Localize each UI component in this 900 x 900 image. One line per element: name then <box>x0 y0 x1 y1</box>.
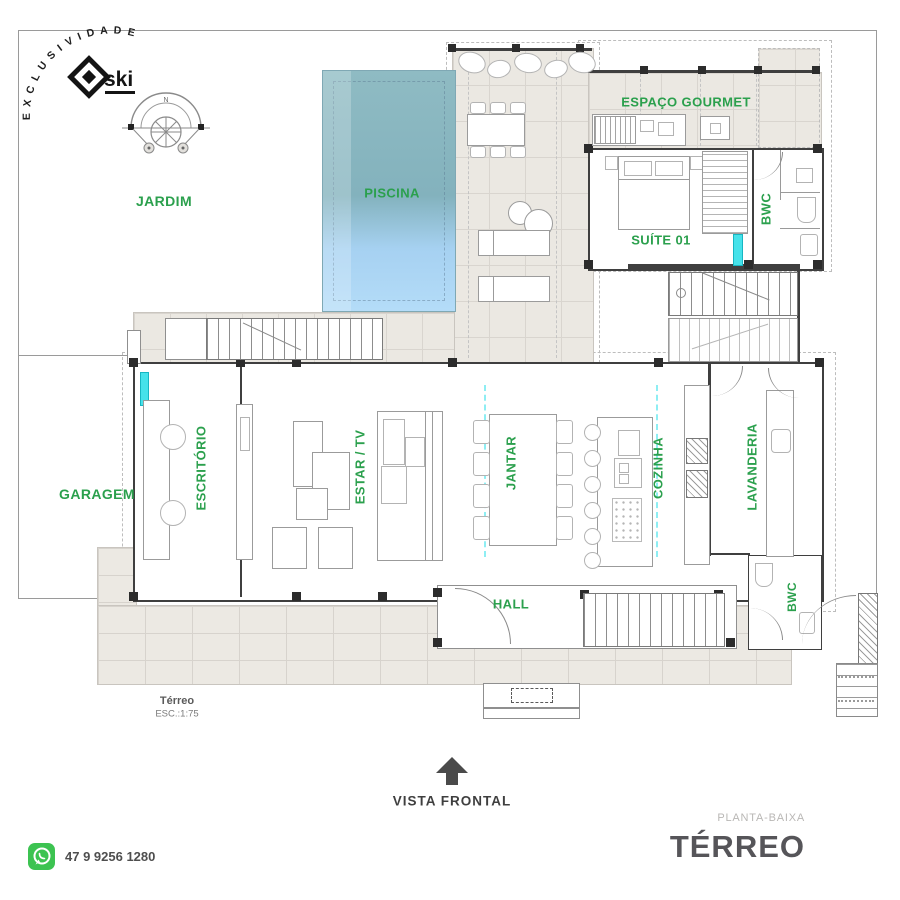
phone-number[interactable]: 47 9 9256 1280 <box>65 849 155 864</box>
office-chair <box>160 500 186 526</box>
stool <box>584 552 601 569</box>
whatsapp-icon[interactable] <box>28 843 55 870</box>
front-view-arrow-stem <box>446 772 458 785</box>
pouf <box>318 527 353 569</box>
column <box>744 260 753 269</box>
blanket-line <box>619 179 689 180</box>
column <box>726 638 735 647</box>
kitchen-island <box>597 417 653 567</box>
sink <box>800 234 818 256</box>
deck-chair <box>490 102 506 114</box>
stairs-lower-flight <box>668 318 798 362</box>
pillow <box>624 161 652 176</box>
room-label-jardim: JARDIM <box>136 193 192 209</box>
column <box>640 66 648 74</box>
deck-chair <box>470 146 486 158</box>
pillow <box>655 161 683 176</box>
column <box>512 44 520 52</box>
porch-mat <box>511 688 553 703</box>
room-label-espaco-gourmet: ESPAÇO GOURMET <box>621 95 751 110</box>
deck-guide-line <box>556 52 557 358</box>
dining-chair <box>556 452 573 476</box>
dining-chair <box>473 484 490 508</box>
office-chair <box>160 424 186 450</box>
laundry-counter <box>766 390 794 557</box>
sliding-door-panel <box>236 404 253 560</box>
stool <box>584 450 601 467</box>
whatsapp-contact[interactable]: 47 9 9256 1280 <box>28 843 155 870</box>
side-steps-dots <box>838 676 874 678</box>
wall-escritorio-divider <box>240 557 242 597</box>
tv-panel-line <box>432 412 433 560</box>
boundary-line-bottom-left <box>18 598 100 599</box>
nightstand <box>605 156 618 170</box>
column <box>433 588 442 597</box>
dining-chair <box>473 420 490 444</box>
toilet <box>755 563 773 587</box>
desk <box>143 400 170 560</box>
compass-north-label: N <box>163 97 168 104</box>
cooktop <box>614 458 642 488</box>
stool <box>584 424 601 441</box>
gourmet-appliance <box>658 122 674 136</box>
front-view-arrow-icon <box>436 757 468 773</box>
sun-lounger <box>478 276 550 302</box>
gourmet-guide-line <box>756 74 757 146</box>
compass-icon: N <box>120 76 212 156</box>
front-view-label: VISTA FRONTAL <box>393 794 512 809</box>
stairs-pool <box>206 318 383 360</box>
dining-table <box>489 414 557 546</box>
plan-title: TÉRREO <box>670 829 805 865</box>
sun-lounger <box>478 230 550 256</box>
room-label-cozinha: COZINHA <box>651 437 666 499</box>
gourmet-pergola <box>758 48 820 148</box>
island-sink <box>618 430 640 456</box>
room-label-escritorio: ESCRITÓRIO <box>194 426 209 511</box>
door-handle <box>240 417 250 451</box>
stool <box>584 502 601 519</box>
column <box>129 592 138 601</box>
plan-name: Térreo <box>160 695 194 707</box>
dining-chair <box>473 516 490 540</box>
gourmet-sink <box>640 120 654 132</box>
column <box>812 66 820 74</box>
toilet <box>797 197 816 223</box>
pool-ledge <box>323 71 351 311</box>
stairs-start-marker <box>676 288 686 298</box>
stool <box>584 528 601 545</box>
rack-shelf <box>381 466 407 504</box>
plan-scale: ESC.:1:75 <box>155 709 198 720</box>
grill <box>594 116 636 144</box>
lounger-backrest <box>493 231 494 255</box>
window-suite <box>733 234 743 266</box>
pouf <box>272 527 307 569</box>
side-steps <box>836 663 878 717</box>
column <box>584 260 593 269</box>
column <box>448 358 457 367</box>
sofa <box>296 488 328 520</box>
driveway-line <box>18 355 133 356</box>
room-label-lavanderia: LAVANDERIA <box>745 423 760 510</box>
logo-diamond-core <box>82 70 96 84</box>
gate-wall <box>858 593 878 665</box>
column <box>815 358 824 367</box>
tv-rack <box>377 411 443 561</box>
column <box>654 358 663 367</box>
appliance <box>686 438 708 464</box>
column <box>448 44 456 52</box>
room-label-piscina: PISCINA <box>364 186 420 201</box>
sink <box>796 168 813 183</box>
room-label-jantar: JANTAR <box>504 436 519 490</box>
island-decor <box>612 498 642 542</box>
wardrobe <box>702 151 748 234</box>
column <box>813 144 822 153</box>
floor-plan-page: JARDIM PISCINA ESPAÇO GOURMET SUÍTE 01 B… <box>0 0 900 900</box>
wall-escritorio-divider <box>240 364 242 404</box>
rack-shelf <box>383 419 405 465</box>
side-steps-dots <box>838 700 874 702</box>
gourmet-island <box>700 116 730 140</box>
column <box>813 260 822 269</box>
room-label-estar-tv: ESTAR / TV <box>353 430 368 505</box>
deck-chair <box>510 146 526 158</box>
column <box>754 66 762 74</box>
column <box>433 638 442 647</box>
deck-chair <box>510 102 526 114</box>
room-label-hall: HALL <box>493 597 529 612</box>
bed <box>618 156 690 230</box>
stairs-upper-flight <box>668 272 798 316</box>
deck-table <box>467 114 525 146</box>
deck-guide-line <box>468 52 469 358</box>
tv-panel-line <box>425 412 426 560</box>
dining-chair <box>556 484 573 508</box>
entry-stairs <box>583 593 725 647</box>
appliance <box>686 470 708 498</box>
dining-chair <box>556 516 573 540</box>
stool <box>584 476 601 493</box>
burner <box>619 474 629 484</box>
column <box>378 592 387 601</box>
rack-shelf <box>405 437 425 467</box>
laundry-sink <box>771 429 791 453</box>
bwc-divider <box>780 228 820 229</box>
column <box>129 358 138 367</box>
porch-step <box>483 708 580 719</box>
bwc-divider <box>780 192 820 193</box>
deck-chair <box>490 146 506 158</box>
burner <box>619 463 629 473</box>
island-sink <box>710 123 721 134</box>
column <box>698 66 706 74</box>
room-label-suite-01: SUÍTE 01 <box>631 233 691 248</box>
wall-stair-hall <box>628 264 800 271</box>
deck-chair <box>470 102 486 114</box>
room-label-bwc-social: BWC <box>785 582 799 612</box>
wall-bwc-top <box>708 553 750 555</box>
room-label-bwc-suite: BWC <box>759 193 774 225</box>
porch-step <box>483 683 580 708</box>
boundary-line-right <box>876 30 877 663</box>
stairs-landing <box>165 318 207 360</box>
wall-deck-top <box>452 48 592 51</box>
dining-chair <box>556 420 573 444</box>
lounger-backrest <box>493 277 494 301</box>
dining-chair <box>473 452 490 476</box>
column <box>292 592 301 601</box>
room-label-garagem: GARAGEM <box>59 486 135 502</box>
plan-subtitle: PLANTA-BAIXA <box>717 812 805 824</box>
